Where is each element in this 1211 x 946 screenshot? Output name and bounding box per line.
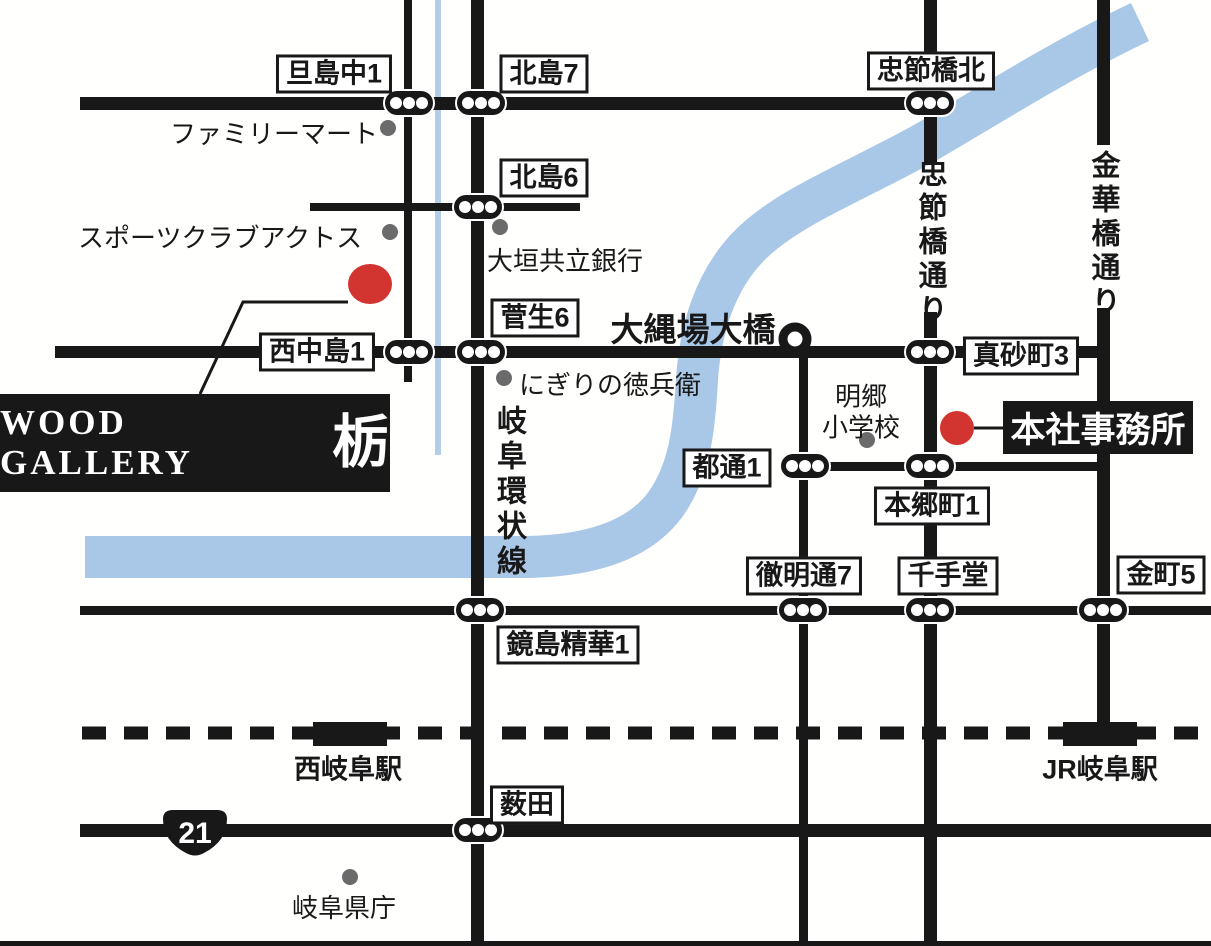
- label-chusetsubashi-dori: 忠節橋通り: [909, 158, 951, 328]
- label-masagocho3: 真砂町3: [963, 336, 1079, 375]
- road-kinkabashi-north: [1097, 0, 1110, 145]
- traffic-signal-icon: [455, 597, 505, 623]
- label-kitajima6: 北島6: [499, 158, 588, 197]
- traffic-signal-icon: [384, 90, 434, 116]
- nishi-gifu-station-marker: [313, 722, 387, 746]
- label-sugao6: 菅生6: [490, 298, 579, 337]
- logo-text-en: WOOD GALLERY: [0, 403, 324, 483]
- wood-gallery-logo: WOOD GALLERY 栃: [0, 394, 390, 492]
- label-nishinakajima1: 西中島1: [259, 332, 375, 371]
- label-kinkabashi-dori: 金華橋通り: [1082, 150, 1124, 320]
- label-nigiri-tokubei: にぎりの徳兵衛: [519, 365, 701, 402]
- label-nishi-gifu-station: 西岐阜駅: [294, 748, 402, 787]
- label-kitajima7: 北島7: [499, 54, 588, 93]
- label-gifu-pref-office: 岐阜県庁: [292, 888, 396, 925]
- jr-gifu-station-marker: [1063, 722, 1137, 746]
- gallery-location-marker: [348, 264, 392, 304]
- road-bottom-edge: [0, 941, 1211, 946]
- label-jr-gifu-station: JR岐阜駅: [1042, 748, 1158, 787]
- road-gifu-kanjosen: [471, 0, 484, 946]
- logo-mark-kanji: 栃: [332, 414, 390, 472]
- road-chusetsubashi-south: [924, 312, 937, 946]
- road-onawaba-south: [799, 340, 808, 946]
- road-kinkabashi-south: [1097, 308, 1110, 727]
- label-sports-club: スポーツクラブアクトス: [78, 218, 362, 255]
- traffic-signal-icon: [905, 339, 955, 365]
- traffic-signal-icon: [456, 339, 506, 365]
- label-gifu-kanjosen: 岐阜環状線: [486, 405, 530, 580]
- label-yabuta: 薮田: [490, 785, 564, 824]
- poi-dot-icon: [382, 224, 398, 240]
- road-kitajima6: [310, 203, 580, 211]
- road-route21: [80, 824, 1211, 837]
- traffic-signal-icon: [1078, 597, 1128, 623]
- traffic-signal-icon: [384, 339, 434, 365]
- access-map: 21 旦島中1 北島7 忠節橋北 北島6 菅生6 西中島1 真砂町3 都通1 本…: [0, 0, 1211, 946]
- road-tetsumeidori: [80, 606, 1211, 615]
- label-miyakodori1: 都通1: [682, 448, 771, 487]
- label-onawaba-ohashi: 大縄場大橋: [611, 303, 776, 351]
- head-office-location-marker: [940, 411, 974, 445]
- poi-dot-icon: [492, 219, 508, 235]
- label-kagashima-seika1: 鏡島精華1: [496, 625, 639, 664]
- traffic-signal-icon: [905, 597, 955, 623]
- label-chusetsubashi-kita: 忠節橋北: [867, 51, 995, 90]
- label-tetsumeidori7: 徹明通7: [746, 556, 862, 595]
- onawaba-bridge-icon: [783, 327, 807, 351]
- traffic-signal-icon: [778, 597, 828, 623]
- traffic-signal-icon: [780, 453, 830, 479]
- label-tanjima-naka1: 旦島中1: [276, 54, 392, 93]
- traffic-signal-icon: [456, 90, 506, 116]
- label-hongocho1: 本郷町1: [874, 486, 990, 525]
- road-thin-vertical: [404, 0, 412, 382]
- traffic-signal-icon: [905, 90, 955, 116]
- poi-dot-icon: [342, 869, 358, 885]
- traffic-signal-icon: [905, 453, 955, 479]
- label-senjudo: 千手堂: [898, 556, 999, 595]
- traffic-signal-icon: [453, 194, 503, 220]
- label-ogaki-bank: 大垣共立銀行: [487, 241, 643, 278]
- label-family-mart: ファミリーマート: [170, 114, 378, 151]
- head-office-label: 本社事務所: [1003, 401, 1193, 454]
- label-kanamachi5: 金町5: [1116, 555, 1205, 594]
- poi-dot-icon: [380, 120, 396, 136]
- poi-dot-icon: [496, 370, 512, 386]
- label-meigo-elementary: 明郷 小学校: [822, 381, 900, 442]
- route-21-number: 21: [178, 817, 211, 850]
